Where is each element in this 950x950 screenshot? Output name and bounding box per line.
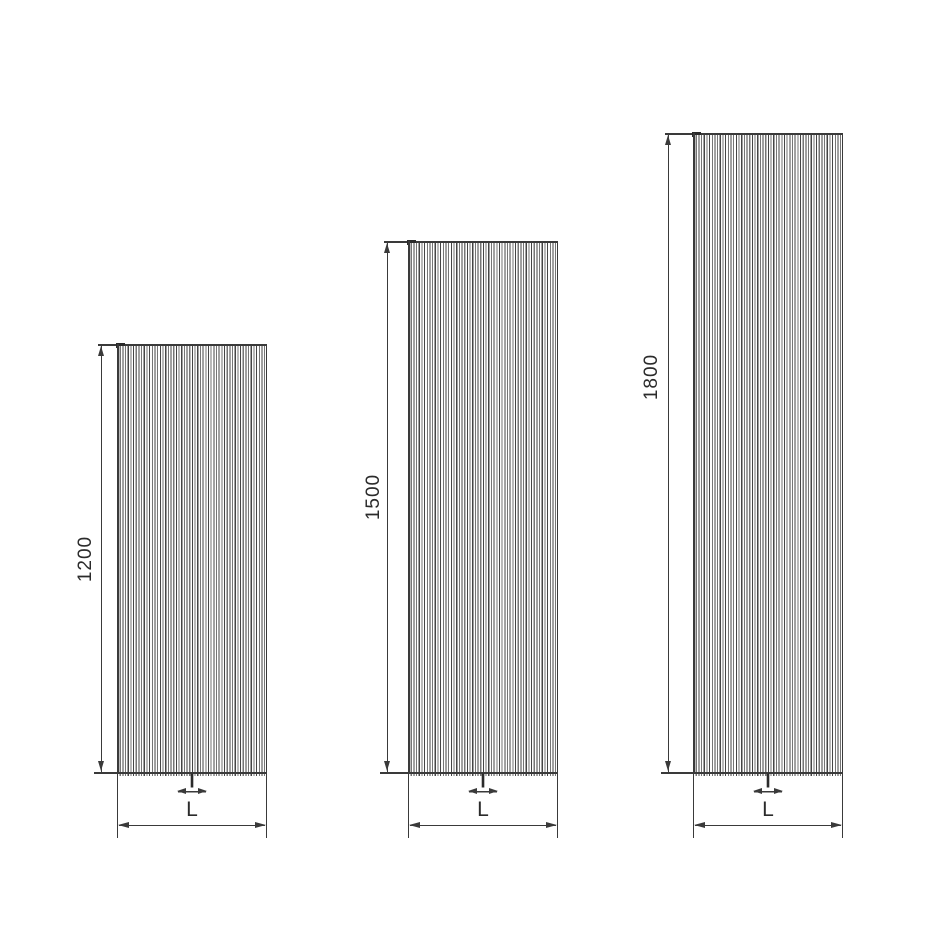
fin-width-arrow-icon (754, 788, 782, 795)
radiator-figure-1200: 1200 l L (0, 0, 950, 950)
panel-bottom-edge (661, 772, 843, 774)
arrow-up-icon (384, 243, 390, 253)
fin-width-arrow-icon (178, 788, 206, 795)
panel-left-edge (117, 344, 119, 773)
arrow-right-icon (546, 822, 557, 828)
extension-line-left (408, 774, 409, 838)
panel-right-edge (842, 133, 844, 773)
arrow-up-icon (665, 135, 671, 145)
width-dimension-label: L (186, 798, 198, 822)
height-dimension-label: 1800 (641, 354, 663, 400)
panel-top-edge (665, 133, 843, 135)
arrow-right-icon (831, 822, 842, 828)
panel-right-edge (557, 241, 559, 773)
panel-top-edge (98, 344, 267, 346)
height-dimension-line (387, 243, 388, 773)
panel-top-edge (384, 241, 558, 243)
extension-line-right (557, 774, 558, 838)
fin-width-arrow-icon (469, 788, 497, 795)
panel-left-edge (693, 133, 695, 773)
panel-bottom-edge (380, 772, 558, 774)
extension-line-right (266, 774, 267, 838)
radiator-panel (693, 135, 843, 776)
panel-right-edge (266, 344, 268, 773)
panel-left-edge (408, 241, 410, 773)
arrow-up-icon (98, 346, 104, 356)
width-dimension-label: L (762, 798, 774, 822)
technical-drawing-canvas: 1200 l L 1500 l L (0, 0, 950, 950)
corner-mark (692, 132, 701, 137)
panel-bottom-edge (94, 772, 267, 774)
width-dimension-label: L (477, 798, 489, 822)
arrow-down-icon (98, 761, 104, 771)
height-dimension-label: 1200 (75, 536, 97, 582)
arrow-left-icon (118, 822, 129, 828)
fin-width-label: l (480, 773, 485, 792)
height-dimension-line (101, 346, 102, 773)
width-dimension-line (119, 825, 265, 827)
radiator-panel (117, 346, 267, 776)
arrow-down-icon (384, 761, 390, 771)
width-dimension-line (410, 825, 556, 827)
radiator-panel (408, 243, 558, 776)
arrow-down-icon (665, 761, 671, 771)
extension-line-right (842, 774, 843, 838)
arrow-left-icon (409, 822, 420, 828)
corner-mark (116, 343, 125, 348)
height-dimension-line (668, 135, 669, 773)
height-dimension-label: 1500 (363, 474, 385, 520)
corner-mark (407, 240, 416, 245)
arrow-left-icon (694, 822, 705, 828)
extension-line-left (693, 774, 694, 838)
fin-width-label: l (765, 773, 770, 792)
radiator-figure-1500: 1500 l L (0, 0, 950, 950)
extension-line-left (117, 774, 118, 838)
radiator-figure-1800: 1800 l L (0, 0, 950, 950)
fin-width-label: l (189, 773, 194, 792)
arrow-right-icon (255, 822, 266, 828)
width-dimension-line (695, 825, 841, 827)
